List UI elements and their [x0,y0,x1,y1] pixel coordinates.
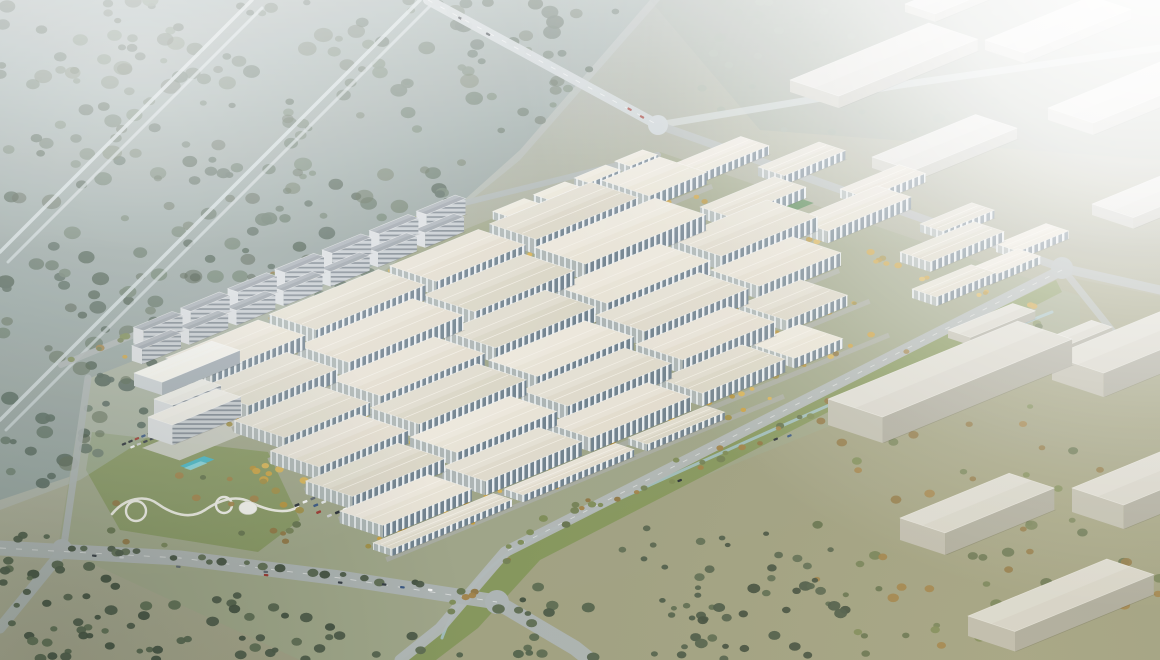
soft-focus-film [0,0,1160,660]
aerial-site-rendering [0,0,1160,660]
scene-canvas [0,0,1160,660]
atmosphere-layer [0,0,1160,660]
